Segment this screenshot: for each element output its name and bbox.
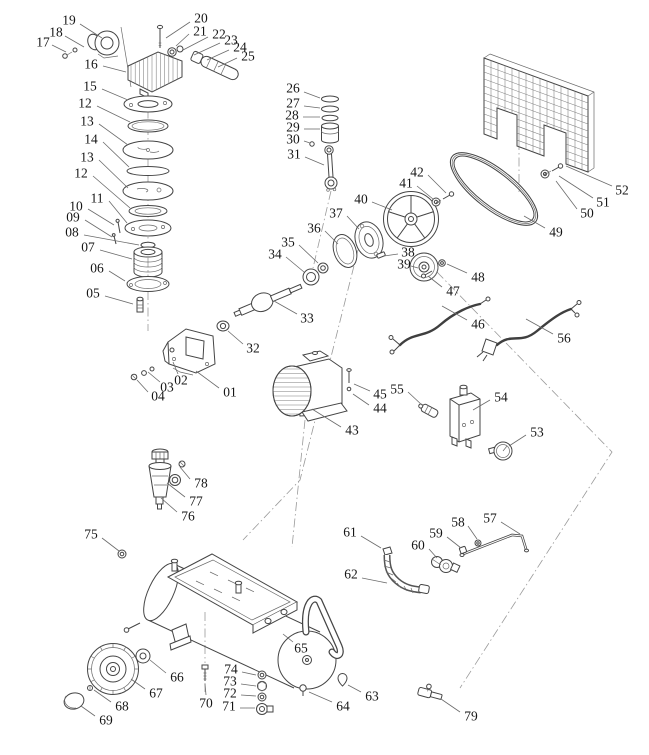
part-label-09: 09 [66, 210, 80, 225]
leader-line-75 [102, 538, 119, 551]
part-tank-mounting-plate [168, 554, 297, 633]
leader-line-73 [241, 684, 256, 686]
part-label-13: 13 [80, 150, 94, 165]
part-label-48: 48 [471, 270, 485, 285]
leader-line-23 [194, 43, 220, 55]
part-label-34: 34 [268, 247, 282, 262]
part-label-44: 44 [373, 401, 387, 416]
part-label-18: 18 [49, 25, 63, 40]
part-label-13: 13 [80, 114, 94, 129]
leader-line-18 [65, 36, 84, 47]
part-filter-regulator [149, 449, 181, 509]
leader-line-51 [559, 176, 593, 198]
leader-line-05 [105, 296, 133, 304]
leader-line-52 [566, 166, 612, 186]
part-label-77: 77 [189, 494, 203, 509]
leader-line-04 [137, 380, 148, 392]
part-v-belt [440, 141, 548, 238]
part-drain-plug [300, 685, 306, 696]
part-label-41: 41 [399, 176, 413, 191]
part-label-52: 52 [615, 183, 629, 198]
part-label-66: 66 [170, 670, 184, 685]
part-label-25: 25 [241, 49, 255, 64]
leader-line-60 [429, 549, 437, 558]
part-discharge-hose [383, 547, 430, 594]
part-handle-grip [190, 50, 240, 81]
leader-line-30 [304, 141, 310, 143]
part-mounting-screws [131, 367, 154, 380]
part-label-47: 47 [446, 284, 460, 299]
part-outlet-fitting [168, 46, 183, 56]
part-axle-pin [124, 623, 140, 632]
leader-line-21 [176, 34, 189, 46]
part-piston-rings [322, 96, 339, 121]
part-label-11: 11 [91, 191, 104, 206]
leader-line-13 [99, 160, 128, 188]
leader-line-32 [228, 331, 243, 344]
part-label-32: 32 [246, 341, 260, 356]
part-pulley-washer [439, 260, 446, 267]
part-crankcase [163, 329, 215, 375]
diagram-canvas: 1718192021222324251615121314131211100908… [0, 0, 649, 755]
part-label-57: 57 [483, 511, 497, 526]
part-check-valve [432, 557, 460, 573]
part-label-49: 49 [549, 225, 563, 240]
part-label-58: 58 [451, 515, 465, 530]
part-cylinder [134, 247, 162, 277]
part-connecting-rod [325, 146, 337, 192]
part-label-63: 63 [365, 689, 379, 704]
part-label-17: 17 [36, 35, 50, 50]
leader-line-22 [183, 37, 208, 50]
part-tank-foot [170, 624, 191, 650]
part-wheel-washer [136, 649, 150, 663]
part-label-04: 04 [151, 389, 165, 404]
leader-line-24 [207, 50, 229, 60]
part-outlet-pipe [460, 535, 529, 557]
part-clip-63 [338, 674, 347, 687]
leader-line-44 [353, 394, 369, 405]
part-grille-screw [544, 164, 563, 175]
part-label-01: 01 [223, 385, 237, 400]
leader-line-27 [304, 106, 320, 108]
leader-line-31 [305, 157, 324, 165]
leader-line-26 [304, 92, 320, 98]
part-belt-guard-grille [484, 53, 594, 201]
leader-line-01 [196, 371, 219, 388]
part-label-69: 69 [99, 713, 113, 728]
part-label-26: 26 [286, 81, 300, 96]
leader-line-53 [509, 435, 526, 446]
part-label-08: 08 [65, 225, 79, 240]
part-inlet-silencer [86, 31, 119, 58]
leader-line-66 [150, 660, 166, 673]
leader-line-58 [468, 526, 477, 539]
part-piston-pin [310, 142, 314, 146]
part-label-30: 30 [286, 132, 300, 147]
part-pressure-gauge [489, 442, 512, 460]
part-label-43: 43 [345, 423, 359, 438]
part-label-06: 06 [90, 261, 104, 276]
leader-line-59 [447, 537, 461, 548]
part-label-45: 45 [373, 387, 387, 402]
part-label-65: 65 [294, 641, 308, 656]
part-label-12: 12 [74, 166, 88, 181]
leader-line-61 [361, 536, 381, 548]
part-label-75: 75 [84, 527, 98, 542]
leader-line-62 [362, 578, 387, 583]
part-drain-valve [417, 682, 444, 701]
part-label-35: 35 [281, 235, 295, 250]
leader-line-34 [286, 257, 304, 272]
part-label-55: 55 [390, 382, 404, 397]
leader-line-06 [109, 271, 125, 281]
part-label-62: 62 [344, 567, 358, 582]
part-head-bolt [157, 25, 162, 48]
part-filter-screw [179, 461, 185, 467]
part-label-59: 59 [429, 526, 443, 541]
leader-line-42 [428, 175, 446, 193]
part-label-37: 37 [329, 206, 343, 221]
part-bolt-68 [88, 686, 93, 691]
part-label-79: 79 [464, 709, 478, 724]
part-label-15: 15 [83, 79, 97, 94]
part-label-46: 46 [471, 317, 485, 332]
part-hub-cap [62, 691, 85, 712]
part-label-02: 02 [174, 373, 188, 388]
part-label-68: 68 [115, 699, 129, 714]
part-label-05: 05 [86, 286, 100, 301]
part-motor-screws [347, 369, 351, 391]
part-label-40: 40 [354, 192, 368, 207]
leader-line-78 [180, 467, 190, 479]
part-cylinder-gasket [127, 277, 169, 292]
leader-line-03 [148, 372, 160, 382]
leader-line-48 [447, 264, 467, 273]
part-washer-seal [318, 263, 328, 273]
leader-line-74 [242, 672, 256, 675]
part-label-64: 64 [336, 699, 350, 714]
part-motor [272, 351, 347, 421]
leader-line-33 [274, 301, 297, 314]
leader-line-17 [52, 45, 66, 52]
part-pipe-nut [475, 540, 481, 546]
part-label-19: 19 [62, 13, 76, 28]
part-crankshaft [231, 278, 304, 323]
part-label-21: 21 [193, 24, 207, 39]
leader-line-45 [354, 384, 370, 391]
part-stud [137, 297, 143, 312]
part-bearing [303, 269, 319, 285]
leader-line-76 [161, 498, 177, 512]
part-label-36: 36 [307, 221, 321, 236]
part-label-71: 71 [222, 699, 236, 714]
leader-line-07 [100, 250, 132, 259]
part-label-16: 16 [84, 57, 98, 72]
part-nut-75 [118, 550, 126, 558]
part-label-33: 33 [300, 311, 314, 326]
part-label-54: 54 [494, 390, 508, 405]
part-label-67: 67 [149, 686, 163, 701]
leader-line-64 [309, 692, 332, 702]
leader-line-63 [348, 685, 361, 692]
leader-line-12 [97, 106, 130, 122]
exploded-view-drawing: 1718192021222324251615121314131211100908… [0, 0, 649, 755]
part-flywheel [384, 192, 439, 247]
leader-line-20 [166, 22, 190, 38]
leader-line-55 [408, 392, 423, 406]
part-pressure-switch [450, 385, 480, 448]
leader-line-72 [241, 695, 256, 696]
part-label-60: 60 [411, 538, 425, 553]
leader-line-69 [81, 706, 95, 716]
part-label-31: 31 [287, 147, 301, 162]
part-label-70: 70 [199, 696, 213, 711]
leader-line-37 [347, 216, 359, 229]
part-label-56: 56 [557, 331, 571, 346]
part-label-61: 61 [343, 525, 357, 540]
part-piston [322, 123, 339, 143]
part-label-39: 39 [397, 257, 411, 272]
leader-line-16 [103, 66, 126, 72]
leader-line-35 [299, 245, 318, 263]
leader-line-10 [88, 209, 114, 225]
part-flywheel-screw [436, 192, 454, 203]
leader-line-79 [441, 699, 460, 712]
leader-line-15 [102, 89, 128, 100]
part-wheel [88, 644, 139, 695]
leader-line-47 [428, 276, 442, 287]
part-label-78: 78 [194, 476, 208, 491]
part-label-14: 14 [84, 132, 98, 147]
part-label-53: 53 [530, 425, 544, 440]
part-label-12: 12 [78, 96, 92, 111]
part-label-76: 76 [181, 509, 195, 524]
leader-line-09 [85, 220, 112, 237]
part-silencer-screws [63, 48, 77, 58]
part-label-51: 51 [596, 195, 610, 210]
part-label-50: 50 [580, 206, 594, 221]
leader-line-70 [205, 684, 206, 695]
leader-line-38 [384, 254, 398, 256]
leader-line-57 [501, 522, 520, 534]
part-crank-nut [217, 321, 229, 331]
part-label-07: 07 [81, 240, 95, 255]
leader-line-46 [442, 306, 467, 320]
part-cable-connector [417, 402, 439, 419]
part-bolt-70 [202, 665, 208, 681]
